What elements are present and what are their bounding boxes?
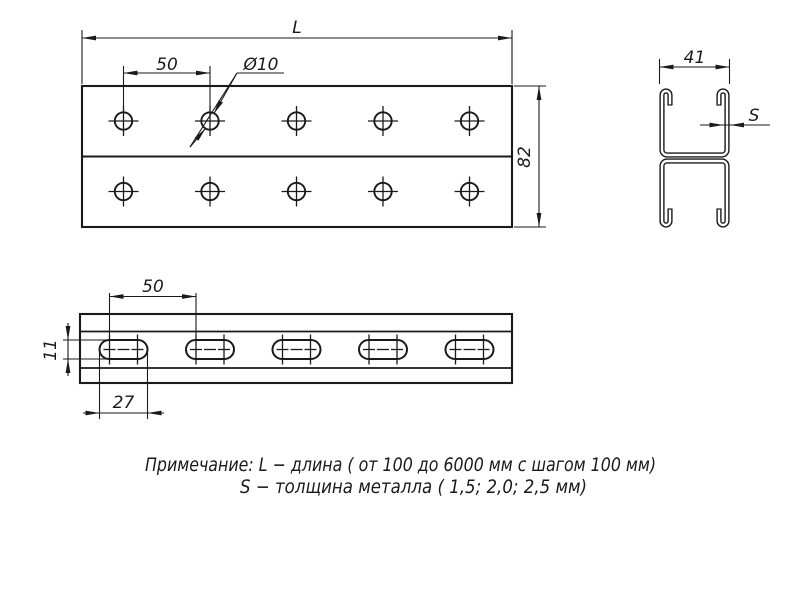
hole-marker [109,106,139,136]
hole-marker [368,177,398,207]
slot-marker [446,335,494,365]
hole-marker [455,106,485,136]
dim-thickness: S [700,106,770,126]
slot-marker [186,335,234,365]
side-view: 50 11 27 [41,277,512,419]
note-line-1: Примечание: L − длина ( от 100 до 6000 м… [145,454,656,476]
hole-marker [455,177,485,207]
hole-marker [282,106,312,136]
hole-marker [109,177,139,207]
side-outline [80,314,512,383]
dim-label-hole-diameter: Ø10 [242,55,278,75]
hole-marker [195,177,225,207]
slot-marker [273,335,321,365]
dim-hole-spacing: 50 [124,55,211,107]
channel-top-profile [662,91,727,155]
dim-length: L [82,18,512,84]
dim-label-slot-spacing: 50 [142,277,164,297]
dim-label-width: 41 [684,48,706,68]
dim-slot-length: 27 [83,352,164,419]
dim-label-slot-length: 27 [113,393,135,413]
plan-view [82,86,512,227]
hole-marker [368,106,398,136]
dim-height: 82 [514,86,546,227]
drawing-note: Примечание: L − длина ( от 100 до 6000 м… [145,454,656,498]
dim-label-slot-height: 11 [41,339,61,361]
slot-marker [100,335,148,365]
section-view: 41 S [660,48,771,225]
dim-label-thickness: S [749,106,760,126]
hole-marker [282,177,312,207]
dim-slot-spacing: 50 [110,277,197,335]
technical-drawing: L 50 Ø10 82 41 [0,0,800,600]
dim-label-length: L [292,18,301,38]
dim-hole-diameter: Ø10 [190,55,284,147]
slot-marker [359,335,407,365]
dim-label-hole-spacing: 50 [156,55,178,75]
channel-bottom-profile [662,161,727,225]
dim-label-height: 82 [515,146,535,168]
note-line-2: S − толщина металла ( 1,5; 2,0; 2,5 мм) [240,476,587,498]
